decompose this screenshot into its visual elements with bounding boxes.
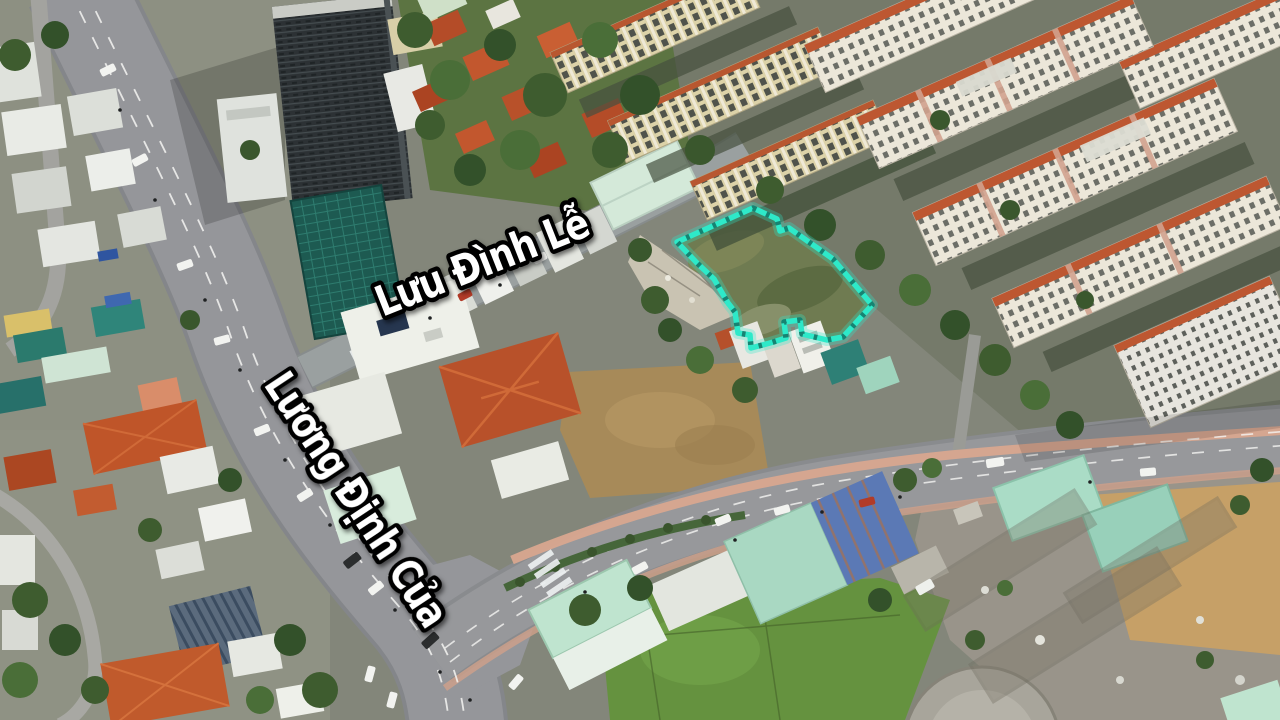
tree (592, 132, 628, 168)
motorbike (283, 458, 287, 462)
tree (569, 594, 601, 626)
debris (981, 586, 989, 594)
building-roof (85, 148, 136, 191)
tree (302, 672, 338, 708)
tree (893, 468, 917, 492)
debris (1235, 675, 1245, 685)
debris (1196, 616, 1204, 624)
median-tree (587, 547, 597, 557)
tree (582, 22, 618, 58)
tree (246, 686, 274, 714)
tree (397, 12, 433, 48)
motorbike (468, 698, 472, 702)
motorbike (428, 316, 432, 320)
tree (868, 588, 892, 612)
tree (1250, 458, 1274, 482)
median-tree (701, 515, 711, 525)
car (1140, 467, 1157, 476)
dirt-patch (675, 425, 755, 465)
tree (0, 39, 31, 71)
tree (855, 240, 885, 270)
tree (1076, 291, 1094, 309)
debris (1116, 676, 1124, 684)
tree (240, 140, 260, 160)
aerial-photo: Lưu Đình Lễ Lương Định Của (0, 0, 1280, 720)
tree (138, 518, 162, 542)
motorbike (583, 590, 587, 594)
tree (627, 575, 653, 601)
building-roof (0, 535, 35, 585)
tree (218, 468, 242, 492)
tree (922, 458, 942, 478)
tree (500, 130, 540, 170)
tree (12, 582, 48, 618)
motorbike (118, 108, 122, 112)
tree (1056, 411, 1084, 439)
tree (930, 110, 950, 130)
tree (685, 135, 715, 165)
tree (2, 662, 38, 698)
debris (665, 275, 671, 281)
tree (180, 310, 200, 330)
tree (899, 274, 931, 306)
motorbike (438, 670, 442, 674)
tree (965, 630, 985, 650)
tree (484, 29, 516, 61)
debris (1035, 635, 1045, 645)
building-roof (11, 166, 71, 213)
tree (628, 238, 652, 262)
motorbike (153, 198, 157, 202)
tree (415, 110, 445, 140)
tree (686, 346, 714, 374)
median-tree (663, 523, 673, 533)
motorbike (238, 368, 242, 372)
median-tree (625, 534, 635, 544)
motorbike (1088, 480, 1092, 484)
debris (689, 297, 695, 303)
tree (81, 676, 109, 704)
tree (49, 624, 81, 656)
motorbike (328, 523, 332, 527)
tree (979, 344, 1011, 376)
motorbike (393, 608, 397, 612)
tree (430, 60, 470, 100)
tree (1020, 380, 1050, 410)
tree (523, 73, 567, 117)
tree (940, 310, 970, 340)
tree (658, 318, 682, 342)
motorbike (898, 495, 902, 499)
tree (274, 624, 306, 656)
tree (454, 154, 486, 186)
tree (620, 75, 660, 115)
median-tree (515, 577, 525, 587)
motorbike (733, 538, 737, 542)
tree (997, 580, 1013, 596)
tree (1196, 651, 1214, 669)
tree (1000, 200, 1020, 220)
tree (756, 176, 784, 204)
motorbike (203, 298, 207, 302)
tree (1230, 495, 1250, 515)
motorbike (820, 510, 824, 514)
tree (41, 21, 69, 49)
motorbike (498, 283, 502, 287)
tree (641, 286, 669, 314)
tree (732, 377, 758, 403)
aerial-scene: Lưu Đình Lễ Lương Định Của (0, 0, 1280, 720)
building-roof (67, 88, 123, 136)
building-roof (1, 104, 67, 156)
